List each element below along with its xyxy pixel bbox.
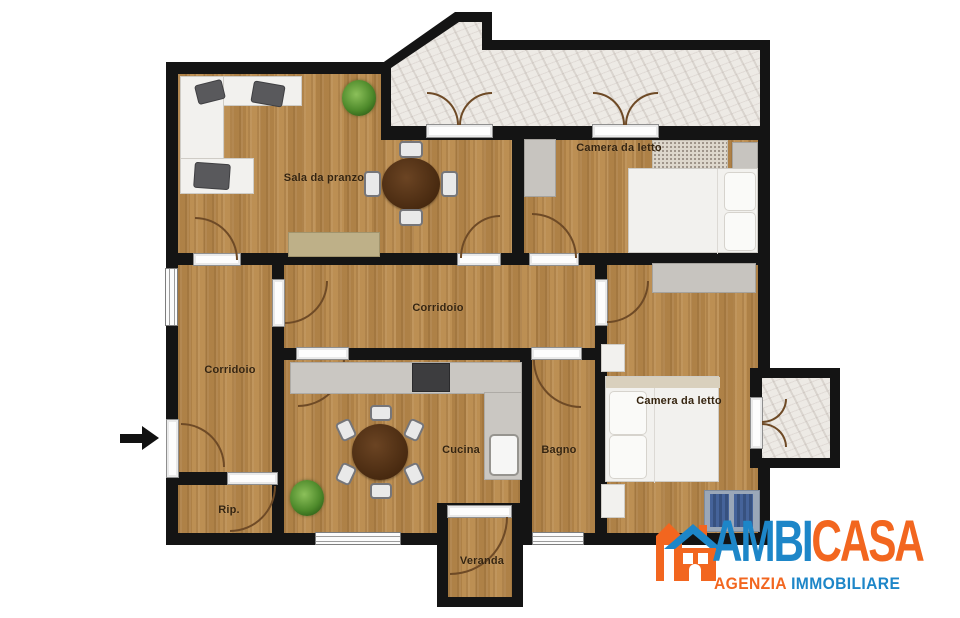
kitchen-table — [352, 424, 408, 480]
door-frame-entrance — [166, 419, 179, 478]
room-label-corridoio-ingresso: Corridoio — [204, 364, 255, 376]
bed-fold-line — [717, 169, 718, 254]
door-frame-balcony-camera — [592, 124, 659, 138]
pillow-camera-sud — [609, 435, 647, 479]
chair-sala — [399, 209, 423, 226]
nightstand-north — [601, 344, 625, 372]
window-cucina-south — [315, 532, 401, 545]
chair-sala — [441, 171, 458, 197]
chair-cucina — [370, 405, 392, 421]
chair-sala — [399, 141, 423, 158]
wall-outer-top — [166, 62, 388, 74]
plant-sala — [342, 80, 376, 116]
room-label-veranda: Veranda — [460, 555, 504, 567]
door-frame-cucina — [296, 347, 349, 360]
window-bagno-south — [532, 532, 584, 545]
room-label-camera-sud: Camera da letto — [636, 395, 722, 407]
logo-text-casa: CASA — [811, 509, 922, 574]
chair-sala — [364, 171, 381, 197]
arrow-shaft — [120, 434, 142, 443]
wardrobe-camera-nord — [524, 139, 556, 197]
door-frame-bagno — [531, 347, 582, 360]
room-label-corridoio-centrale: Corridoio — [412, 302, 463, 314]
floorplan-canvas: Sala da pranzo Camera da letto Corridoio… — [0, 0, 960, 618]
door-frame-balcony-sala — [426, 124, 493, 138]
wall-outer-bottom-1 — [166, 533, 316, 545]
tagline-immobiliare: IMMOBILIARE — [791, 574, 900, 593]
bed-headboard — [606, 377, 720, 388]
room-label-cucina: Cucina — [442, 444, 480, 456]
sofa-cushion — [193, 162, 231, 190]
room-label-sala-da-pranzo: Sala da pranzo — [284, 172, 364, 184]
plant-cucina — [290, 480, 324, 516]
logo-wordmark: AMBICASA — [712, 512, 923, 573]
room-label-bagno: Bagno — [541, 444, 576, 456]
wall-outer-bottom-2 — [400, 533, 438, 545]
door-frame-ripostiglio — [227, 472, 278, 485]
dining-table-sala — [382, 158, 440, 210]
sideboard-sala — [288, 232, 380, 257]
kitchen-counter-top — [290, 362, 522, 394]
entrance-arrow-icon — [120, 426, 160, 450]
pillow-camera-nord — [724, 172, 756, 211]
stove — [412, 363, 450, 392]
wall-sala-camera-nord — [512, 128, 524, 265]
room-label-camera-nord: Camera da letto — [576, 142, 662, 154]
logo-tagline: AGENZIA IMMOBILIARE — [714, 574, 900, 594]
chair-cucina — [370, 483, 392, 499]
pillow-camera-nord — [724, 212, 756, 251]
logo-text-ambi: AMBI — [712, 509, 811, 574]
room-label-ripostiglio: Rip. — [218, 504, 240, 516]
nightstand-south — [601, 484, 625, 518]
wall-outer-right-upper — [758, 128, 770, 368]
door-frame-corridoio — [272, 279, 285, 327]
tagline-agenzia: AGENZIA — [714, 574, 786, 593]
window-corridoio-west — [165, 268, 178, 326]
arrow-head — [142, 426, 159, 450]
wardrobe-camera-sud — [652, 263, 756, 293]
sink — [489, 434, 519, 476]
